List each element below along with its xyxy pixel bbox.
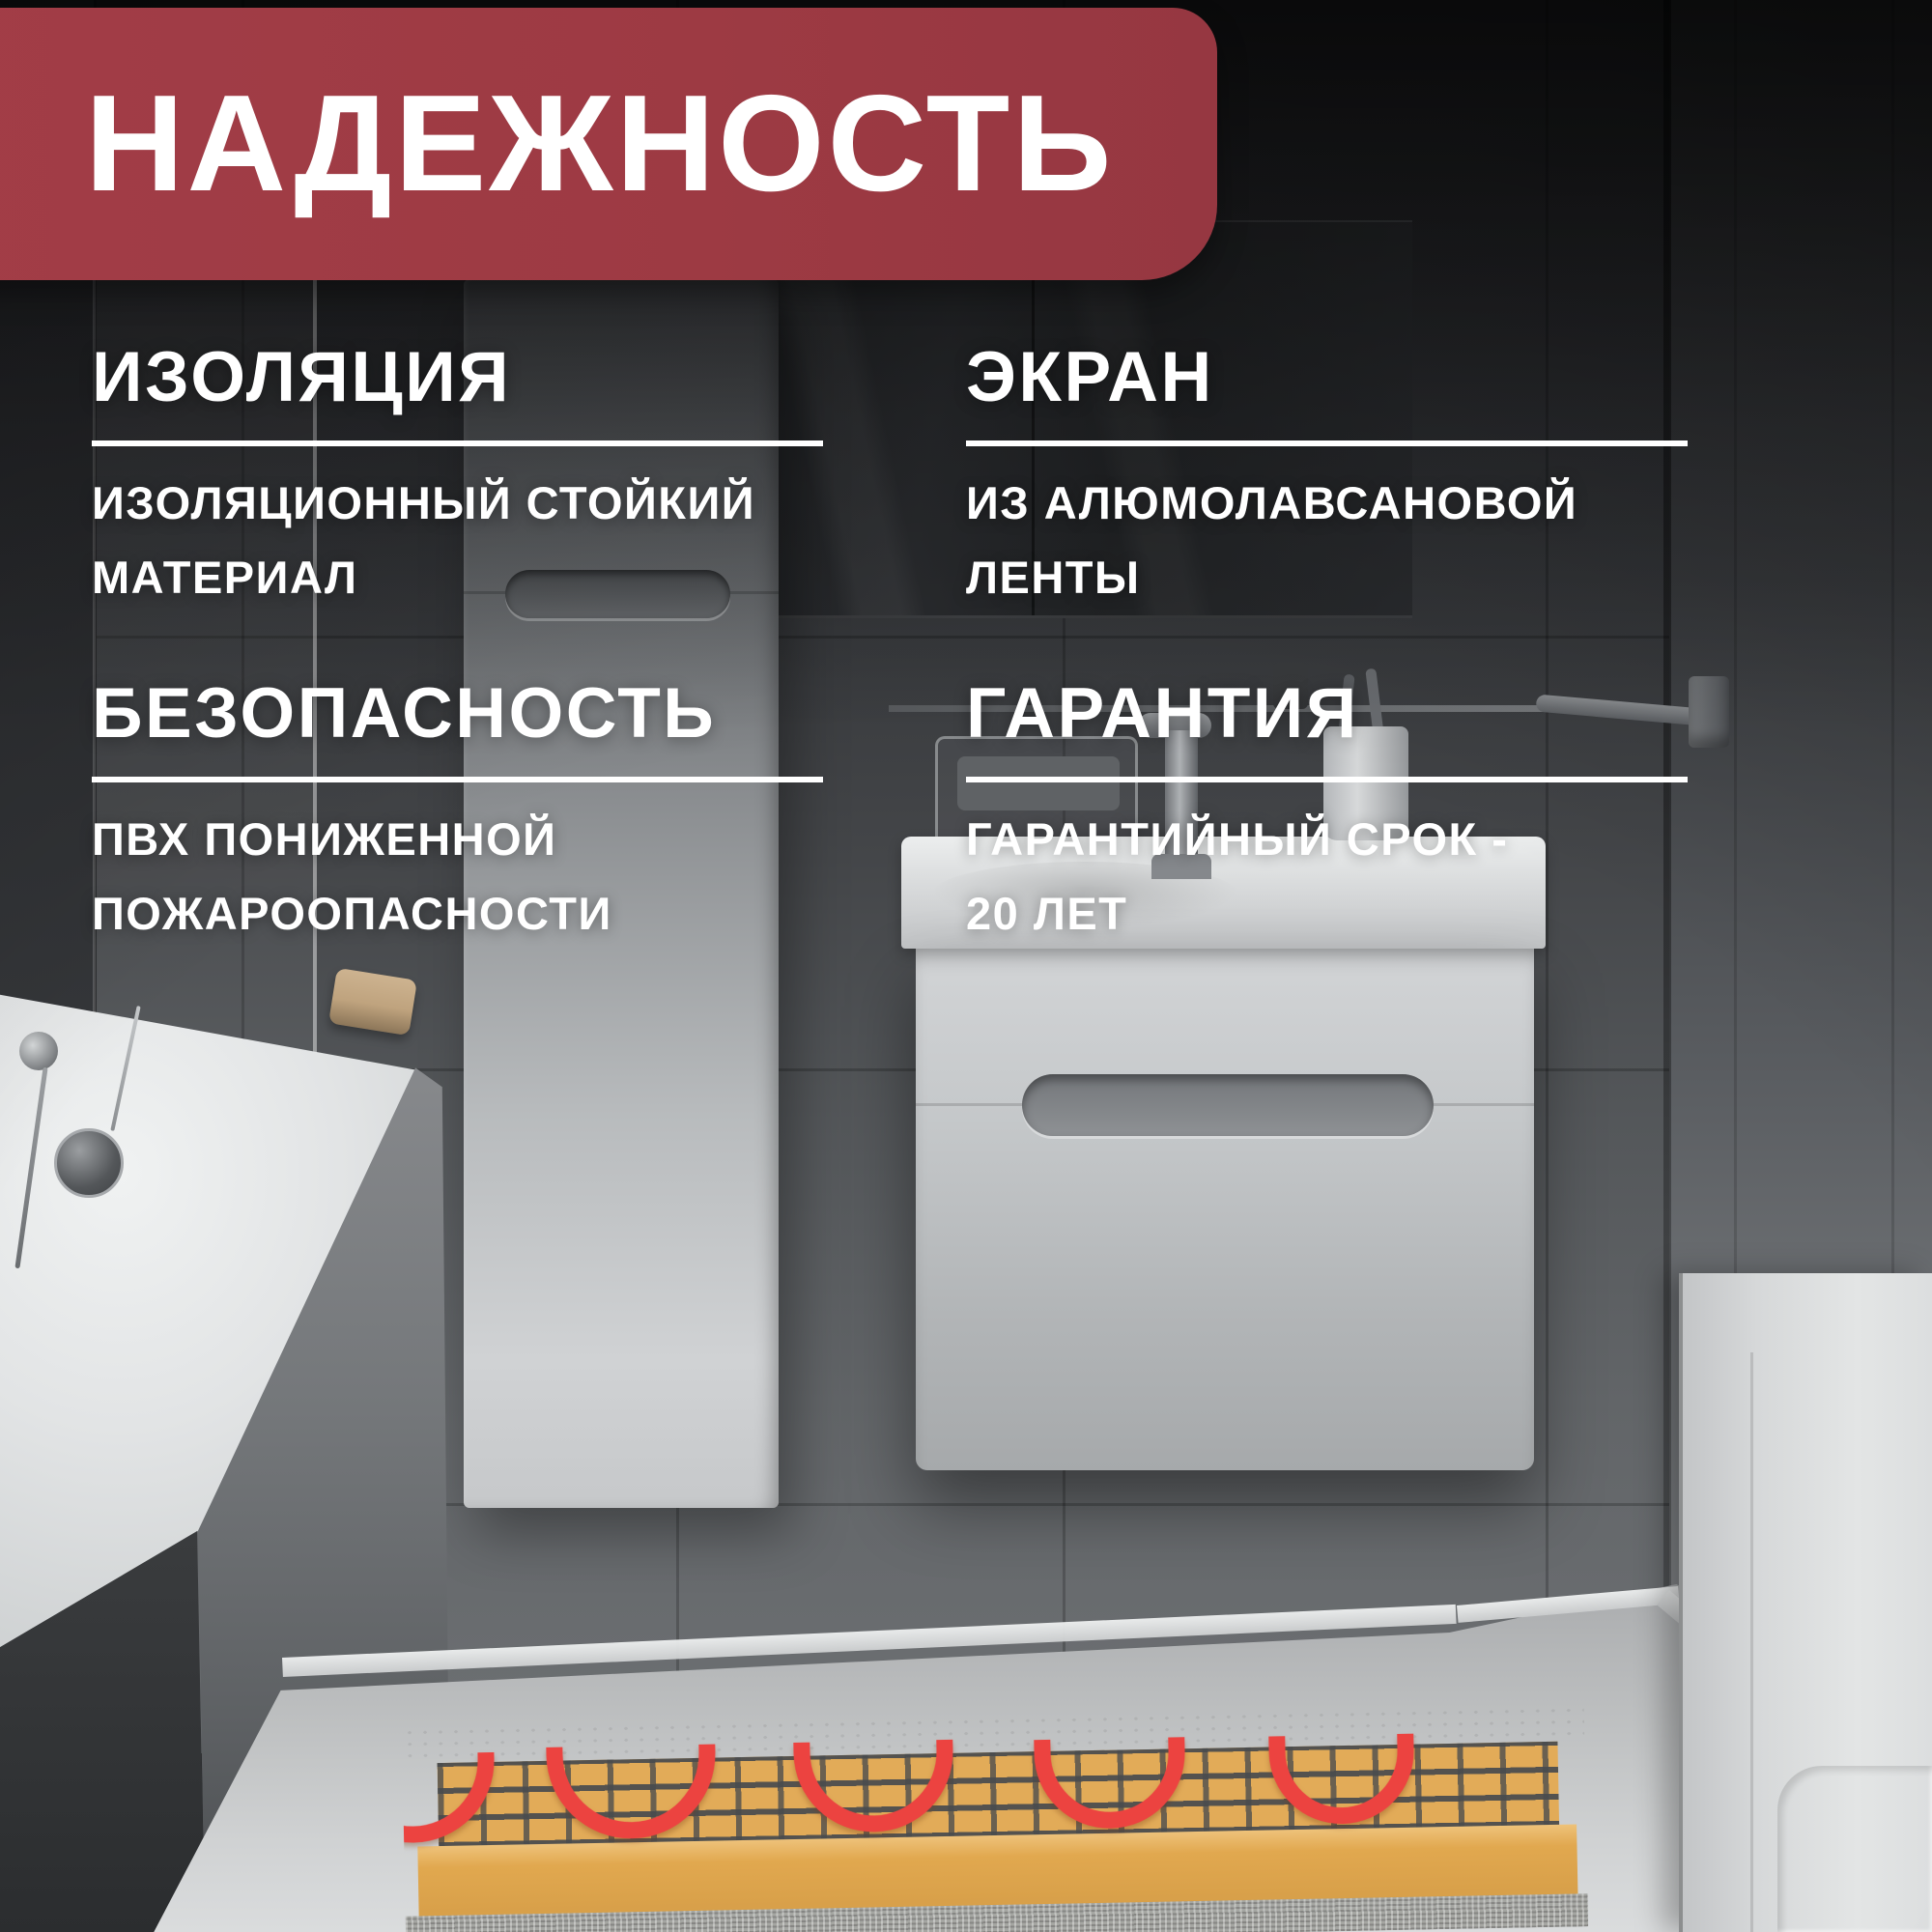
- bathtub-drain: [54, 1128, 124, 1198]
- heating-mat-cutaway: [402, 1704, 1588, 1932]
- feature-text-line: ПВХ ПОНИЖЕННОЙ: [92, 802, 855, 876]
- feature-heading: ИЗОЛЯЦИЯ: [92, 340, 855, 415]
- tile-joint: [1891, 0, 1894, 1449]
- feature-heading: ГАРАНТИЯ: [966, 676, 1729, 752]
- feature-description: ГАРАНТИЙНЫЙ СРОК - 20 ЛЕТ: [966, 802, 1729, 951]
- door-molding: [1777, 1766, 1932, 1932]
- shower-mixer: [19, 1032, 58, 1070]
- door-groove: [1750, 1352, 1753, 1932]
- feature-warranty: ГАРАНТИЯ ГАРАНТИЙНЫЙ СРОК - 20 ЛЕТ: [966, 676, 1729, 951]
- feature-insulation: ИЗОЛЯЦИЯ ИЗОЛЯЦИОННЫЙ СТОЙКИЙ МАТЕРИАЛ: [92, 340, 855, 614]
- feature-text-line: ИЗОЛЯЦИОННЫЙ СТОЙКИЙ: [92, 466, 855, 540]
- vanity-cabinet: [916, 949, 1534, 1470]
- tile-joint: [1734, 0, 1737, 1449]
- feature-text-line: МАТЕРИАЛ: [92, 540, 855, 614]
- product-infographic: НАДЕЖНОСТЬ ИЗОЛЯЦИЯ ИЗОЛЯЦИОННЫЙ СТОЙКИЙ…: [0, 0, 1932, 1932]
- bathroom-scene: [0, 0, 1932, 1932]
- feature-underline: [966, 777, 1688, 782]
- feature-heading: БЕЗОПАСНОСТЬ: [92, 676, 855, 752]
- feature-heading: ЭКРАН: [966, 340, 1729, 415]
- feature-text-line: ГАРАНТИЙНЫЙ СРОК -: [966, 802, 1729, 876]
- feature-underline: [92, 777, 823, 782]
- feature-description: ПВХ ПОНИЖЕННОЙ ПОЖАРООПАСНОСТИ: [92, 802, 855, 951]
- feature-shield: ЭКРАН ИЗ АЛЮМОЛАВСАНОВОЙ ЛЕНТЫ: [966, 340, 1729, 614]
- feature-description: ИЗ АЛЮМОЛАВСАНОВОЙ ЛЕНТЫ: [966, 466, 1729, 614]
- vanity-handle: [1022, 1074, 1434, 1136]
- feature-text-line: 20 ЛЕТ: [966, 876, 1729, 951]
- feature-underline: [966, 440, 1688, 446]
- feature-safety: БЕЗОПАСНОСТЬ ПВХ ПОНИЖЕННОЙ ПОЖАРООПАСНО…: [92, 676, 855, 951]
- page-title: НАДЕЖНОСТЬ: [85, 75, 1114, 213]
- feature-description: ИЗОЛЯЦИОННЫЙ СТОЙКИЙ МАТЕРИАЛ: [92, 466, 855, 614]
- feature-text-line: ЛЕНТЫ: [966, 540, 1729, 614]
- title-banner: НАДЕЖНОСТЬ: [0, 8, 1217, 280]
- feature-text-line: ИЗ АЛЮМОЛАВСАНОВОЙ: [966, 466, 1729, 540]
- feature-underline: [92, 440, 823, 446]
- feature-text-line: ПОЖАРООПАСНОСТИ: [92, 876, 855, 951]
